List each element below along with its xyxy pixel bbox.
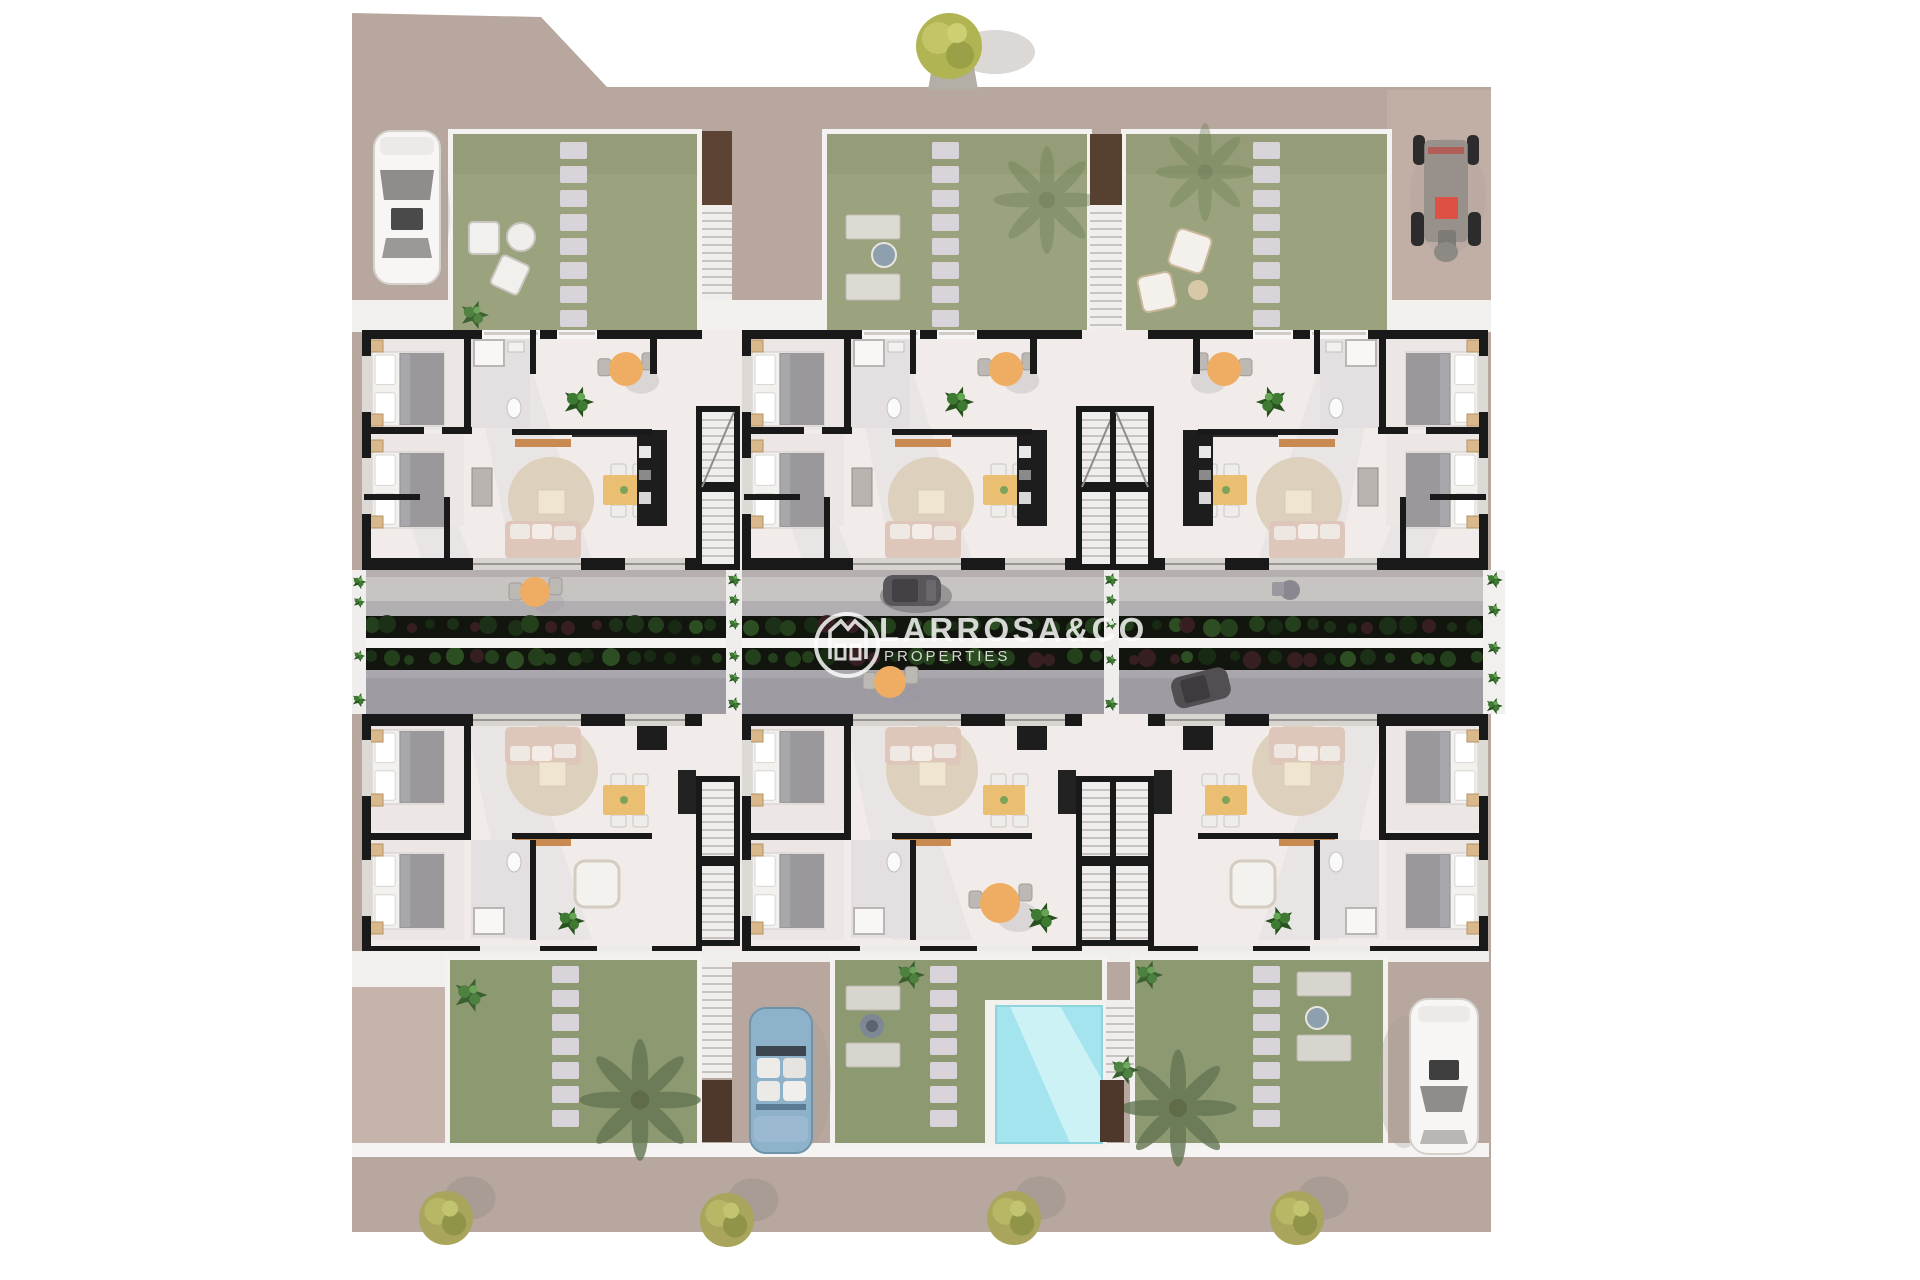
svg-text:LARROSA&CO: LARROSA&CO [879, 611, 1148, 648]
svg-text:PROPERTIES: PROPERTIES [884, 648, 1010, 665]
